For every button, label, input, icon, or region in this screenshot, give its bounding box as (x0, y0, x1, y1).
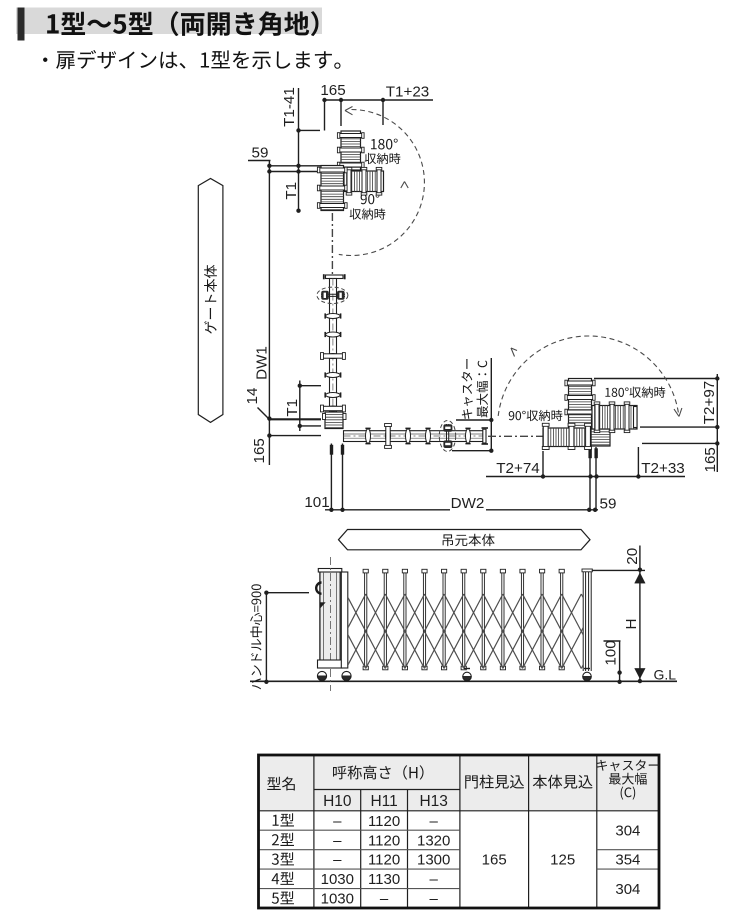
svg-text:T1+23: T1+23 (386, 84, 430, 101)
svg-text:165: 165 (482, 852, 507, 869)
svg-text:59: 59 (252, 145, 269, 162)
svg-text:1300: 1300 (417, 852, 450, 869)
svg-text:165: 165 (320, 82, 345, 99)
svg-text:H: H (623, 619, 640, 630)
svg-text:DW2: DW2 (451, 495, 485, 512)
svg-text:–: – (430, 813, 439, 830)
svg-text:1130: 1130 (368, 871, 400, 888)
svg-text:–: – (333, 813, 342, 830)
svg-text:14: 14 (244, 388, 261, 405)
svg-text:304: 304 (615, 823, 640, 840)
svg-text:165: 165 (702, 447, 719, 472)
svg-text:101: 101 (304, 494, 329, 511)
svg-text:20: 20 (624, 548, 641, 565)
svg-text:H11: H11 (370, 793, 397, 810)
svg-text:1120: 1120 (368, 832, 400, 849)
svg-text:100: 100 (603, 640, 620, 665)
svg-text:1120: 1120 (368, 852, 400, 869)
svg-text:–: – (380, 891, 389, 908)
svg-text:T2+97: T2+97 (701, 381, 718, 425)
svg-text:59: 59 (600, 496, 617, 513)
svg-text:–: – (333, 852, 342, 869)
svg-text:T2+33: T2+33 (641, 460, 685, 477)
svg-text:H10: H10 (323, 793, 352, 810)
svg-text:T1: T1 (284, 399, 301, 417)
svg-text:–: – (333, 832, 342, 849)
svg-text:1120: 1120 (368, 813, 400, 830)
svg-text:304: 304 (615, 881, 640, 898)
svg-text:T2+74: T2+74 (496, 460, 540, 477)
svg-text:–: – (430, 891, 439, 908)
svg-text:1320: 1320 (417, 832, 450, 849)
svg-text:T1: T1 (283, 182, 300, 200)
svg-text:G.L: G.L (654, 667, 677, 683)
svg-text:–: – (430, 871, 439, 888)
svg-text:165: 165 (251, 438, 268, 463)
svg-text:T1-41: T1-41 (281, 87, 298, 127)
svg-text:354: 354 (615, 852, 640, 869)
svg-text:H13: H13 (419, 793, 447, 810)
svg-text:1030: 1030 (321, 891, 354, 908)
svg-text:DW1: DW1 (253, 346, 270, 380)
svg-text:125: 125 (550, 852, 575, 869)
svg-text:1030: 1030 (321, 871, 354, 888)
